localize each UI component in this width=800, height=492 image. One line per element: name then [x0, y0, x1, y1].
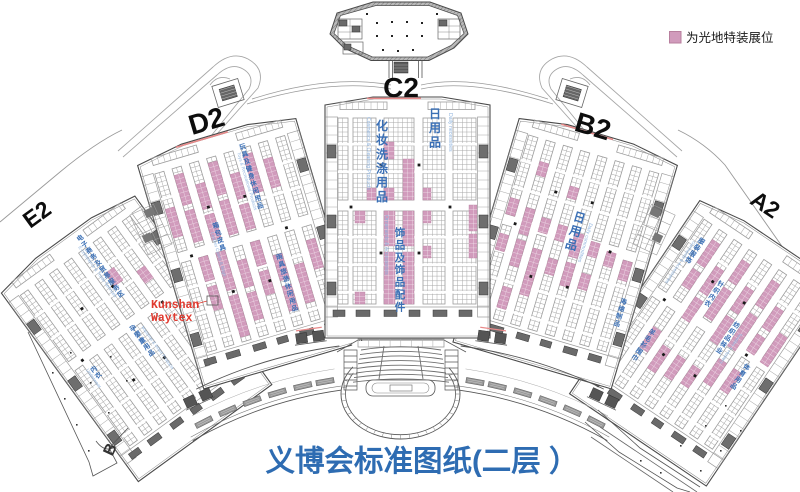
svg-text:日用品: 日用品 — [428, 107, 441, 149]
svg-text:化妆洗涤用品: 化妆洗涤用品 — [375, 118, 388, 204]
svg-text:Waytex: Waytex — [151, 312, 193, 325]
svg-text:饰品及饰品配件: 饰品及饰品配件 — [395, 226, 406, 313]
svg-text:Kunshan: Kunshan — [151, 299, 199, 312]
svg-text:义博会标准图纸(二层 ）: 义博会标准图纸(二层 ） — [265, 445, 578, 478]
svg-text:为光地特装展位: 为光地特装展位 — [686, 30, 774, 45]
svg-text:C2: C2 — [383, 72, 419, 103]
svg-text:Ornaments & Accessories: Ornaments & Accessories — [383, 215, 389, 275]
svg-text:Daily necessities: Daily necessities — [447, 113, 453, 152]
svg-text:Cosmetics & Cleaning Products: Cosmetics & Cleaning Products — [365, 117, 371, 190]
